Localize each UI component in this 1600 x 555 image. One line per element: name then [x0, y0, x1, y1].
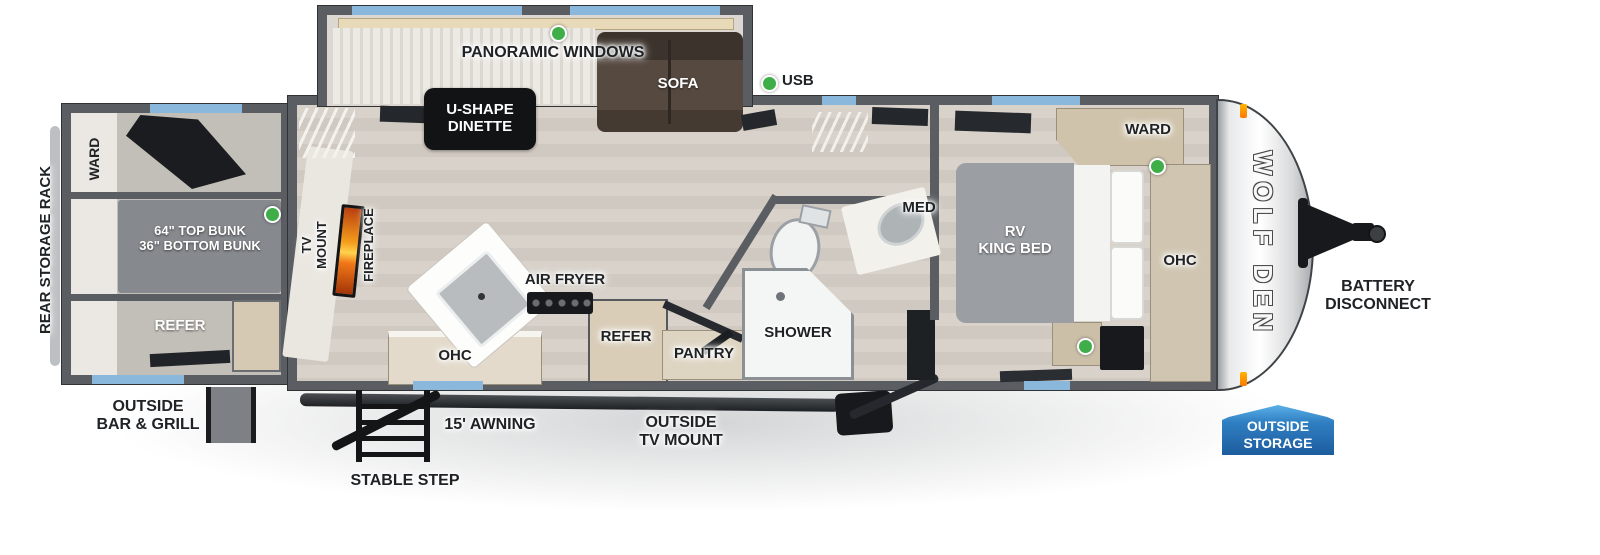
med-cabinet-label: MED [888, 200, 950, 217]
bedroom-ohc-label: OHC [1140, 253, 1220, 270]
kitchen-overhead-cabinet [872, 107, 929, 126]
usb-label: USB [782, 73, 852, 90]
stable-step-label: STABLE STEP [330, 472, 480, 490]
stable-step-rung-4 [362, 452, 424, 457]
bunkroom-top-window [150, 104, 242, 113]
kitchen-refer-label: REFER [586, 329, 666, 346]
bedroom-usb-indicator-top-icon [1149, 158, 1166, 175]
hitch-jack-knob [1368, 225, 1386, 243]
bedroom-tv [1100, 326, 1144, 370]
usb-indicator-icon [761, 75, 778, 92]
sofa-label: SOFA [638, 76, 718, 93]
hitch-a-frame [1306, 204, 1356, 260]
bunkroom-refer [232, 300, 281, 372]
bedroom-wardrobe-black [907, 310, 935, 380]
bunk-usb-indicator-icon [264, 206, 281, 223]
bedroom-ohc-cabinet [1150, 164, 1211, 382]
shower-drain [776, 292, 785, 301]
slideout-window-right [570, 6, 720, 15]
bunkroom-ward-label: WARD [87, 124, 103, 194]
shower-label: SHOWER [738, 325, 858, 342]
bunkroom-refer-label: REFER [140, 318, 220, 335]
kitchen-sink-drain [478, 293, 485, 300]
entry-door-main [413, 381, 483, 390]
marker-light-top [1240, 104, 1247, 118]
bunk-beds-label: 64" TOP BUNK 36" BOTTOM BUNK [120, 224, 280, 253]
dinette-table-label: U-SHAPE DINETTE [424, 88, 536, 150]
stable-step-rung-3 [362, 436, 424, 441]
bunkroom-barn-door [299, 108, 355, 158]
king-bed-label: RV KING BED [955, 224, 1075, 258]
stove-air-fryer [527, 292, 593, 314]
outside-bar-grill-label: OUTSIDE BAR & GRILL [58, 398, 238, 434]
marker-light-bottom [1240, 372, 1247, 386]
bed-pillow-top [1110, 170, 1144, 244]
brand-logo: WOLF DEN [1247, 124, 1277, 364]
battery-disconnect-label: BATTERY DISCONNECT [1298, 278, 1458, 314]
tv-mount-label: TV MOUNT [300, 210, 330, 280]
bedroom-dresser [955, 111, 1032, 134]
bath-slide-door [812, 112, 868, 152]
pantry-label: PANTRY [662, 346, 746, 363]
outside-storage-label: OUTSIDE STORAGE [1244, 418, 1313, 455]
bunkroom-bottom-window [92, 375, 184, 384]
slideout-window-left [352, 6, 522, 15]
bedroom-usb-indicator-bottom-icon [1077, 338, 1094, 355]
outside-tv-mount-label: OUTSIDE TV MOUNT [601, 414, 761, 450]
awning-label: 15' AWNING [410, 416, 570, 434]
dinette-label-text: U-SHAPE DINETTE [446, 102, 514, 136]
rear-storage-rack-label: REAR STORAGE RACK [38, 165, 54, 335]
kitchen-ohc-label: OHC [395, 348, 515, 365]
panoramic-windows-label: PANORAMIC WINDOWS [458, 44, 648, 62]
bed-pillow-bottom [1110, 246, 1144, 320]
air-fryer-label: AIR FRYER [505, 272, 625, 289]
rv-floorplan: REAR STORAGE RACK WARD 64" TOP BUNK 36" … [0, 0, 1600, 555]
slideout-usb-indicator-icon [550, 25, 567, 42]
main-top-window [822, 96, 856, 105]
entry-door-bedroom [1024, 381, 1070, 390]
king-bed-sheet [1074, 165, 1110, 321]
bedroom-ward-label: WARD [1098, 122, 1198, 139]
fireplace-label: FIREPLACE [362, 200, 378, 290]
bedroom-top-window [992, 96, 1080, 105]
